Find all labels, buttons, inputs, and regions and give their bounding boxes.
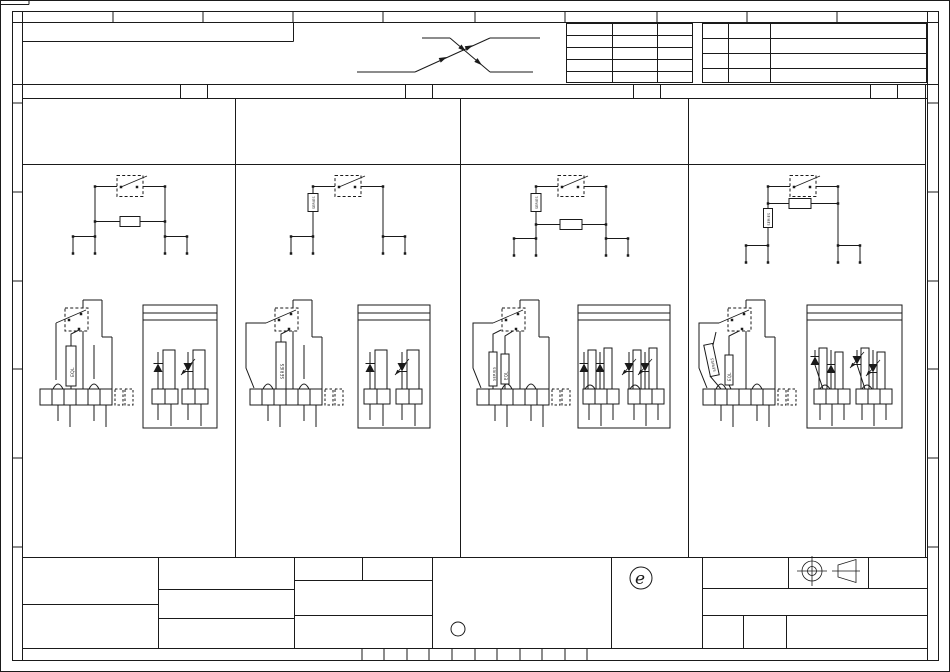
terminal-cell-dashed	[562, 389, 570, 405]
wire-stubs	[58, 405, 106, 427]
column-strip-cells	[181, 85, 898, 99]
column-1-top-circuit	[72, 176, 189, 255]
resistor-label: EQL	[727, 372, 732, 381]
header-title-cell	[23, 23, 294, 42]
wire-stubs	[820, 404, 886, 426]
column-2-top-circuit: SERIES	[290, 176, 407, 255]
diode-up-icon	[366, 364, 375, 373]
revision-table-right	[703, 24, 927, 83]
terminal-block	[856, 389, 892, 404]
stamp-letter: e	[635, 569, 645, 589]
arrowhead-icon	[465, 45, 473, 51]
wire-stubs	[721, 405, 769, 427]
engineering-drawing-sheet: SERIES SERIES SERIES EQL	[0, 0, 950, 672]
column-2-connector-assembly: SERIES	[246, 300, 343, 427]
column-3-diode-module	[578, 305, 670, 428]
wire-stubs	[268, 405, 316, 427]
pin-outline	[604, 348, 612, 389]
module-box	[578, 305, 670, 428]
wire-stubs	[495, 405, 543, 427]
resistor-label: EQL	[503, 371, 508, 380]
diode-up-icon	[154, 364, 163, 373]
resistor-label: SERIES	[312, 196, 316, 209]
wire-stubs	[158, 404, 201, 426]
terminal-cell-dashed	[335, 389, 343, 405]
column-3-top-circuit: SERIES	[513, 176, 630, 257]
column-1-diode-module	[143, 305, 217, 428]
wire-stubs	[589, 404, 658, 426]
diode-up-icon	[811, 357, 820, 366]
diode-up-icon	[596, 364, 605, 373]
pin-outline	[835, 352, 843, 389]
bottom-strip-cells	[362, 649, 587, 661]
resistor-symbol	[66, 346, 76, 386]
revision-table-left	[567, 24, 693, 83]
terminal-block	[814, 389, 850, 404]
pin-outline	[649, 348, 657, 389]
pin-outline	[588, 350, 596, 389]
title-block	[23, 558, 928, 661]
drawing-frame	[13, 12, 939, 661]
terminal-block	[583, 389, 619, 404]
resistor-symbol	[120, 217, 140, 227]
pin-outline	[193, 350, 205, 389]
resistor-label: SERIES	[767, 213, 771, 226]
column-2-diode-module	[358, 305, 430, 428]
resistor-label: SERIES	[492, 366, 496, 381]
company-stamp-icon: e	[630, 567, 652, 589]
contact-bumps	[716, 384, 762, 389]
column-4-connector-assembly: SERIES EQL	[699, 300, 796, 427]
title-block-symbols: e	[451, 556, 860, 636]
terminal-cell-dashed	[788, 389, 796, 405]
contact-bumps	[502, 384, 536, 389]
zone-ticks-right	[928, 103, 939, 547]
column-3-connector-assembly: SERIES EQL	[473, 300, 570, 427]
terminal-cell-dashed	[778, 389, 786, 405]
first-angle-projection-icon	[797, 556, 860, 586]
terminal-cell-dashed	[125, 389, 133, 405]
zone-ticks-left	[13, 103, 23, 547]
arrowhead-icon	[439, 57, 447, 63]
column-4-diode-module	[807, 305, 902, 428]
pin-outline	[633, 350, 641, 389]
column-grid	[23, 85, 926, 558]
pin-outline	[375, 350, 387, 389]
module-box	[807, 305, 902, 428]
resistor-label: SERIES	[535, 196, 539, 209]
column-1-connector-assembly: EQL	[40, 300, 133, 427]
zone-ticks-top	[113, 12, 837, 23]
pin-outline	[819, 348, 827, 389]
pin-outline	[407, 350, 419, 389]
header-band	[23, 23, 927, 83]
module-box	[143, 305, 217, 428]
terminal-cell-dashed	[325, 389, 333, 405]
diode-up-icon	[580, 364, 589, 373]
terminal-block	[628, 389, 664, 404]
column-4-top-circuit: SERIES	[745, 176, 862, 264]
resistor-symbol	[560, 220, 582, 230]
resistor-label: SERIES	[280, 363, 285, 379]
resistor-label: EQL	[70, 367, 76, 377]
resistor-symbol	[789, 199, 811, 209]
pin-outline	[877, 352, 885, 389]
wire-stubs	[370, 404, 415, 426]
drawing-canvas: SERIES SERIES SERIES EQL	[0, 0, 950, 672]
diode-up-icon	[827, 365, 836, 374]
trim-mark	[0, 1, 29, 5]
pin-outline	[163, 350, 175, 389]
revision-circle-icon	[451, 622, 465, 636]
terminal-cell-dashed	[115, 389, 123, 405]
terminal-cell-dashed	[552, 389, 560, 405]
crossover-arrows-logo	[357, 38, 540, 72]
